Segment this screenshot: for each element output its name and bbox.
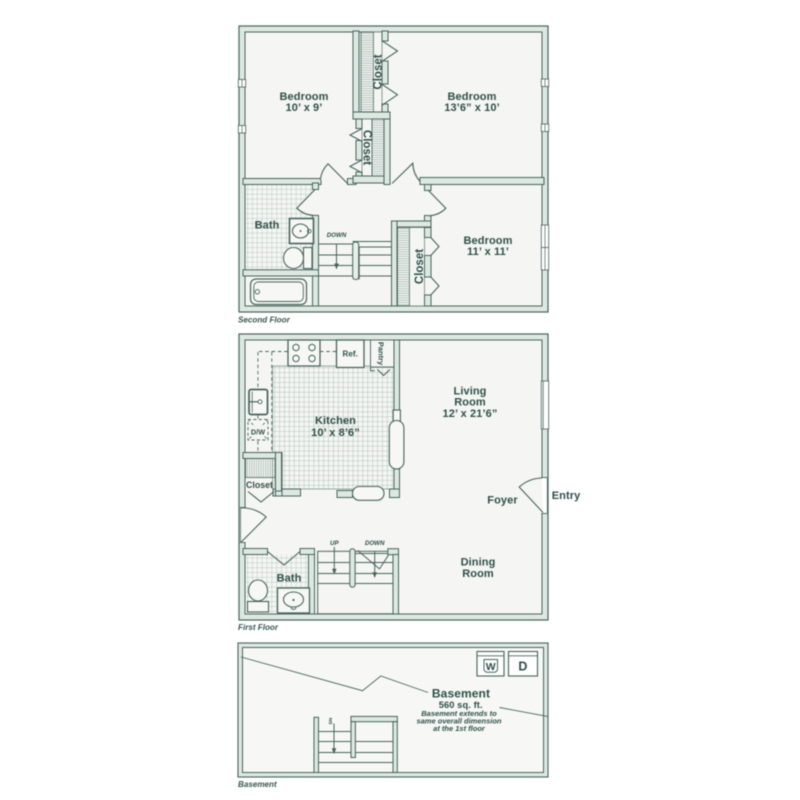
- svg-text:10’ x 8’6”: 10’ x 8’6”: [311, 427, 360, 439]
- svg-text:Entry: Entry: [552, 490, 581, 502]
- svg-text:12’ x 21’6”: 12’ x 21’6”: [443, 408, 498, 420]
- svg-text:Closet: Closet: [361, 130, 373, 165]
- svg-text:DOWN: DOWN: [365, 540, 385, 547]
- svg-text:Ref.: Ref.: [342, 350, 358, 359]
- svg-text:Second Floor: Second Floor: [238, 315, 291, 324]
- svg-text:13’6” x 10’: 13’6” x 10’: [444, 102, 500, 114]
- svg-text:DN: DN: [328, 718, 333, 725]
- svg-text:Dining: Dining: [461, 556, 496, 568]
- svg-text:10’ x 9’: 10’ x 9’: [286, 102, 323, 114]
- svg-text:Foyer: Foyer: [487, 494, 518, 506]
- svg-text:Room: Room: [462, 568, 494, 580]
- svg-text:Basement: Basement: [238, 780, 277, 789]
- svg-text:at the 1st floor: at the 1st floor: [433, 724, 486, 733]
- svg-text:Room: Room: [454, 397, 486, 409]
- svg-text:D: D: [518, 660, 527, 674]
- svg-text:Closet: Closet: [246, 480, 273, 490]
- svg-text:First Floor: First Floor: [238, 623, 279, 632]
- svg-text:Pantry: Pantry: [377, 342, 386, 366]
- svg-text:DOWN: DOWN: [327, 232, 347, 239]
- svg-text:Bath: Bath: [277, 572, 302, 584]
- svg-text:Closet: Closet: [414, 249, 426, 284]
- svg-text:Bath: Bath: [255, 219, 280, 231]
- svg-text:UP: UP: [330, 540, 339, 547]
- svg-text:Closet: Closet: [373, 54, 385, 89]
- svg-text:Kitchen: Kitchen: [315, 415, 356, 427]
- svg-text:Basement: Basement: [432, 687, 490, 701]
- svg-text:D/W: D/W: [251, 428, 265, 437]
- svg-text:W: W: [486, 661, 496, 673]
- svg-text:11’ x 11’: 11’ x 11’: [467, 246, 509, 258]
